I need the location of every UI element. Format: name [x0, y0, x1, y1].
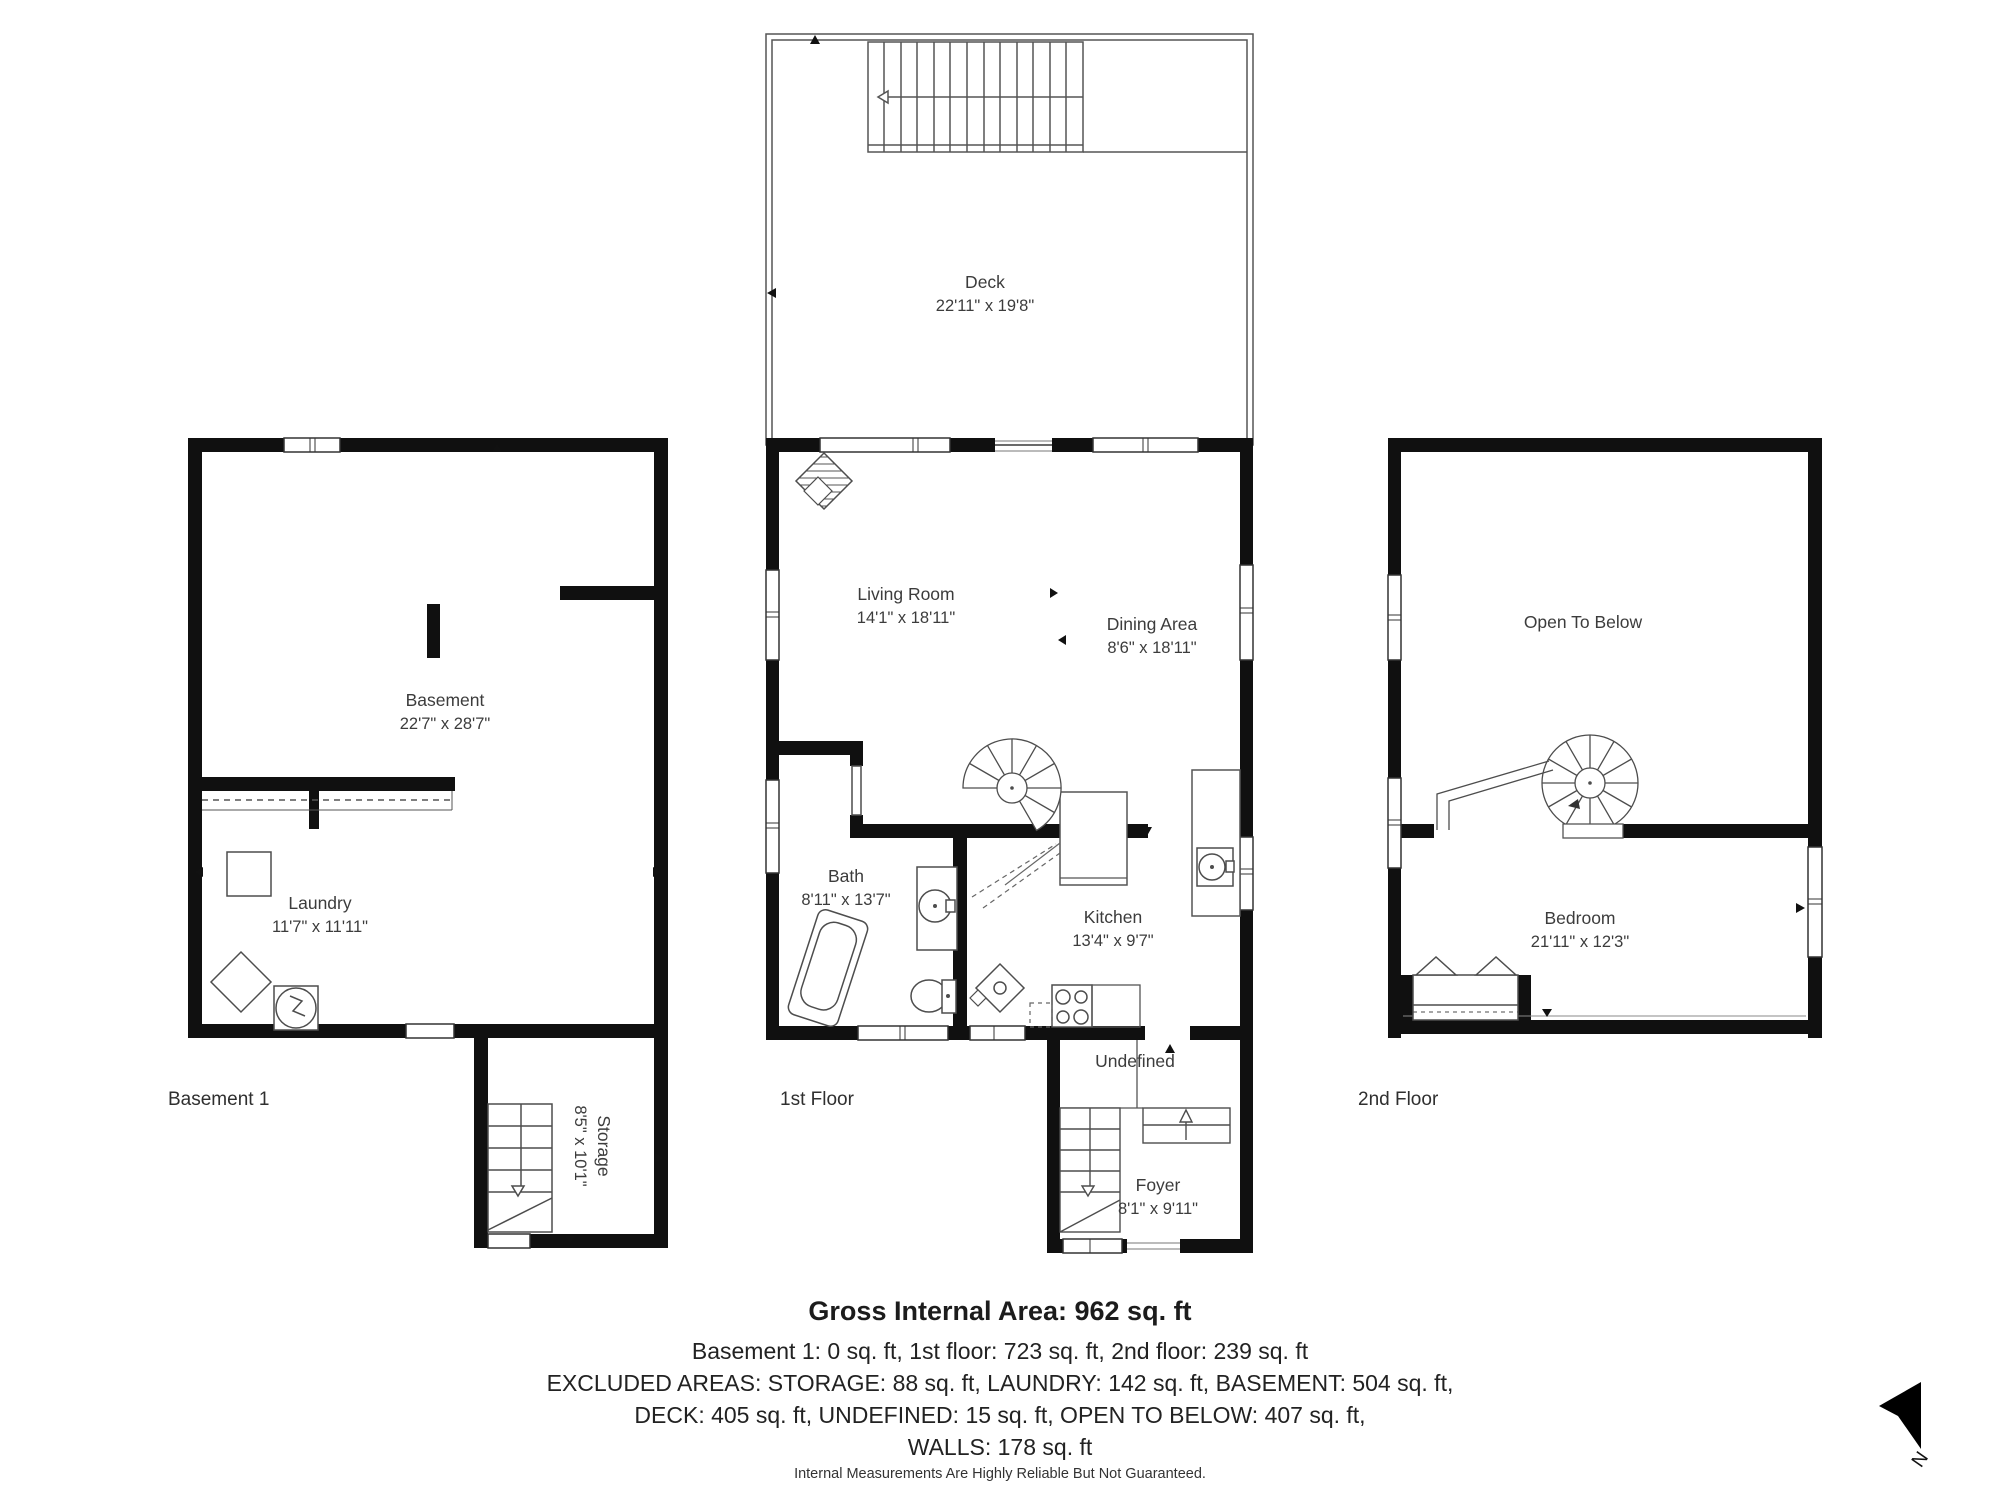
kitchen-counter — [1192, 770, 1240, 916]
room-label-laundry: Laundry 11'7" x 11'11" — [272, 892, 368, 938]
wood-stove-icon — [790, 453, 858, 509]
walls-area-line: WALLS: 178 sq. ft — [0, 1434, 2000, 1461]
window — [1093, 438, 1198, 452]
window — [488, 1234, 530, 1248]
floor-label-first: 1st Floor — [780, 1089, 854, 1111]
room-label-kitchen: Kitchen 13'4" x 9'7" — [1072, 906, 1153, 952]
room-label-dining-area: Dining Area 8'6" x 18'11" — [1107, 613, 1197, 659]
floor-label-second: 2nd Floor — [1358, 1089, 1438, 1111]
kitchen-prep-sink-icon — [970, 964, 1024, 1012]
room-dims: 8'5" x 10'1" — [569, 1105, 591, 1186]
window — [1808, 847, 1822, 957]
room-name: Basement — [400, 689, 491, 713]
room-label-bedroom: Bedroom 21'11" x 12'3" — [1531, 907, 1629, 953]
kitchen-cabinet-dashed — [1030, 1003, 1052, 1027]
room-label-storage: Storage 8'5" x 10'1" — [569, 1105, 615, 1186]
room-name: Kitchen — [1072, 906, 1153, 930]
excluded-areas-line: DECK: 405 sq. ft, UNDEFINED: 15 sq. ft, … — [0, 1402, 2000, 1429]
toilet-icon — [911, 980, 956, 1013]
foyer-stairs-icon — [1060, 1108, 1120, 1232]
window — [1388, 575, 1401, 660]
room-label-basement: Basement 22'7" x 28'7" — [400, 689, 491, 735]
room-name: Bath — [801, 865, 890, 889]
stove-icon — [1052, 985, 1092, 1027]
kitchen-sink-icon — [1197, 848, 1234, 886]
room-name: Storage — [591, 1105, 615, 1186]
window — [406, 1024, 454, 1038]
room-label-open-to-below: Open To Below — [1524, 611, 1642, 635]
room-dims: 22'7" x 28'7" — [400, 713, 491, 735]
room-name: Living Room — [857, 583, 955, 607]
window — [766, 780, 779, 873]
spiral-stairs-icon — [1437, 735, 1638, 838]
laundry-halfwall — [202, 791, 452, 810]
window — [858, 1026, 948, 1040]
disclaimer-note: Internal Measurements Are Highly Reliabl… — [0, 1466, 2000, 1482]
spiral-stairs-icon — [963, 739, 1061, 830]
window — [1063, 1239, 1122, 1253]
window — [820, 438, 950, 452]
kitchen-fixtures — [970, 770, 1240, 1027]
room-name: Bedroom — [1531, 907, 1629, 931]
floorplan-graphics — [0, 0, 2000, 1500]
room-name: Undefined — [1095, 1050, 1175, 1074]
area-breakdown-line: Basement 1: 0 sq. ft, 1st floor: 723 sq.… — [0, 1338, 2000, 1365]
deck-stairs-icon — [868, 42, 1083, 152]
room-name: Foyer — [1118, 1174, 1198, 1198]
room-label-bath: Bath 8'11" x 13'7" — [801, 865, 890, 911]
laundry-fixtures — [211, 852, 318, 1030]
counter-overhang-dashed — [972, 843, 1060, 908]
window — [1388, 778, 1401, 868]
window — [970, 1026, 1025, 1040]
room-dims: 21'11" x 12'3" — [1531, 931, 1629, 953]
room-dims: 8'1" x 9'11" — [1118, 1198, 1198, 1220]
room-name: Deck — [936, 271, 1034, 295]
window — [284, 438, 340, 452]
room-dims: 13'4" x 9'7" — [1072, 930, 1153, 952]
room-label-deck: Deck 22'11" x 19'8" — [936, 271, 1034, 317]
floorplan-page: Basement 22'7" x 28'7" Laundry 11'7" x 1… — [0, 0, 2000, 1500]
room-dims: 8'11" x 13'7" — [801, 889, 890, 911]
entry-steps-icon — [1143, 1108, 1230, 1143]
floor-label-basement: Basement 1 — [168, 1089, 269, 1111]
room-dims: 11'7" x 11'11" — [272, 916, 368, 938]
room-name: Laundry — [272, 892, 368, 916]
room-name: Open To Below — [1524, 611, 1642, 635]
excluded-areas-line: EXCLUDED AREAS: STORAGE: 88 sq. ft, LAUN… — [0, 1370, 2000, 1397]
bath-sink-icon — [917, 867, 957, 950]
room-label-living-room: Living Room 14'1" x 18'11" — [857, 583, 955, 629]
washer-icon — [227, 852, 271, 896]
dryer-icon — [274, 986, 318, 1030]
door-icon — [852, 766, 861, 815]
room-label-foyer: Foyer 8'1" x 9'11" — [1118, 1174, 1198, 1220]
window — [766, 570, 779, 660]
room-label-undefined: Undefined — [1095, 1050, 1175, 1074]
room-dims: 22'11" x 19'8" — [936, 295, 1034, 317]
gross-area-title: Gross Internal Area: 962 sq. ft — [0, 1296, 2000, 1327]
room-dims: 8'6" x 18'11" — [1107, 637, 1197, 659]
stair-landing — [1060, 792, 1127, 885]
bathtub-icon — [786, 908, 869, 1029]
kitchen-counter — [1092, 985, 1140, 1027]
room-name: Dining Area — [1107, 613, 1197, 637]
storage-stairs-icon — [488, 1104, 552, 1232]
room-dims: 14'1" x 18'11" — [857, 607, 955, 629]
laundry-basin-icon — [211, 952, 271, 1012]
bed-icon — [1413, 957, 1518, 1020]
